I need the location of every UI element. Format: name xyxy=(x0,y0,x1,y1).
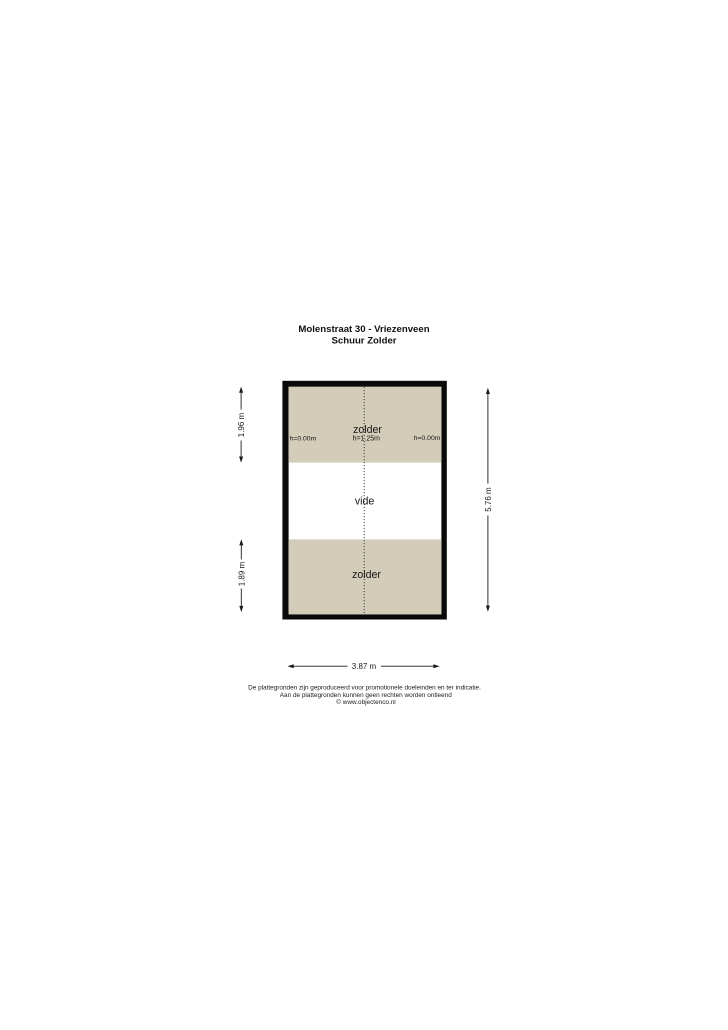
svg-text:h=0.00m: h=0.00m xyxy=(414,435,441,442)
svg-text:Schuur Zolder: Schuur Zolder xyxy=(331,336,396,347)
svg-text:3.87 m: 3.87 m xyxy=(352,662,377,671)
svg-text:vide: vide xyxy=(355,495,375,507)
svg-text:Molenstraat 30 - Vriezenveen: Molenstraat 30 - Vriezenveen xyxy=(298,324,429,335)
svg-text:h=1.25m: h=1.25m xyxy=(353,436,381,443)
svg-text:1.96 m: 1.96 m xyxy=(237,412,246,437)
svg-text:De plattegronden zijn geproduc: De plattegronden zijn geproduceerd voor … xyxy=(248,685,481,692)
svg-text:1.89 m: 1.89 m xyxy=(237,561,246,586)
svg-text:Aan de plattegronden kunnen ge: Aan de plattegronden kunnen geen rechten… xyxy=(280,692,452,699)
svg-text:© www.objectenco.nl: © www.objectenco.nl xyxy=(336,698,395,706)
svg-text:h=0.00m: h=0.00m xyxy=(290,436,317,443)
svg-text:zolder: zolder xyxy=(352,569,381,581)
svg-text:5.76 m: 5.76 m xyxy=(484,487,493,512)
svg-text:zolder: zolder xyxy=(353,424,382,436)
